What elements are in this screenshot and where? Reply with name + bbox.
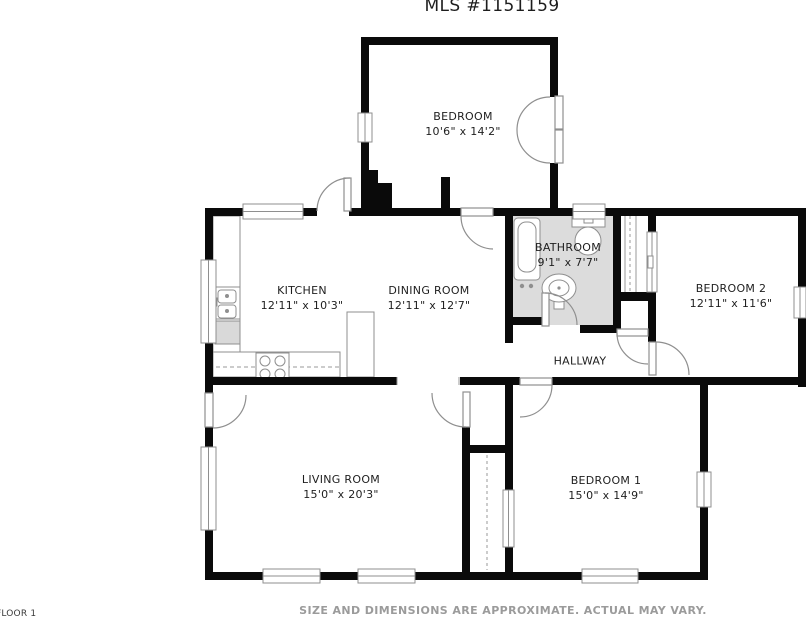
room-name: BEDROOM 2 xyxy=(690,281,773,296)
door-swing xyxy=(205,393,246,428)
room-dims: 12'11" x 12'7" xyxy=(388,298,471,313)
room-name: DINING ROOM xyxy=(388,283,471,298)
window xyxy=(697,472,711,507)
floor-label: FLOOR 1 xyxy=(0,609,36,619)
cased-opening xyxy=(397,377,459,385)
window xyxy=(263,569,320,583)
door-swing xyxy=(317,178,351,211)
door-swing xyxy=(432,392,470,427)
room-dims: 12'11" x 11'6" xyxy=(690,296,773,311)
room-name: BEDROOM xyxy=(425,109,501,124)
page-title: MLS #1151159 xyxy=(424,0,559,16)
room-label-hallway: HALLWAY xyxy=(554,354,607,369)
sliding-door xyxy=(503,490,514,547)
door-swing xyxy=(617,329,648,364)
room-label-bathroom: BATHROOM 9'1" x 7'7" xyxy=(535,240,601,270)
room-label-bedroom-2: BEDROOM 2 12'11" x 11'6" xyxy=(690,281,773,311)
room-dims: 15'0" x 14'9" xyxy=(568,488,644,503)
room-dims: 12'11" x 10'3" xyxy=(261,298,344,313)
room-name: BEDROOM 1 xyxy=(568,473,644,488)
window xyxy=(201,260,216,343)
window xyxy=(794,287,806,318)
room-dims: 15'0" x 20'3" xyxy=(302,487,380,502)
dishwasher-icon xyxy=(215,321,240,344)
door-swing xyxy=(461,208,493,249)
room-label-kitchen: KITCHEN 12'11" x 10'3" xyxy=(261,283,344,313)
double-door-swing xyxy=(517,96,563,163)
room-dims: 9'1" x 7'7" xyxy=(535,255,601,270)
window xyxy=(358,569,415,583)
window xyxy=(201,447,216,530)
room-name: BATHROOM xyxy=(535,240,601,255)
door-swing xyxy=(520,378,552,417)
door-swing xyxy=(649,342,689,375)
windows xyxy=(201,113,806,583)
room-dims: 10'6" x 14'2" xyxy=(425,124,501,139)
window xyxy=(243,204,303,219)
bedroom2-closet xyxy=(625,216,636,292)
room-label-bedroom-1: BEDROOM 1 15'0" x 14'9" xyxy=(568,473,644,503)
room-label-dining-room: DINING ROOM 12'11" x 12'7" xyxy=(388,283,471,313)
window xyxy=(573,204,605,219)
room-label-bedroom-top: BEDROOM 10'6" x 14'2" xyxy=(425,109,501,139)
room-name: HALLWAY xyxy=(554,354,607,369)
room-name: LIVING ROOM xyxy=(302,472,380,487)
floorplan-page: MLS #1151159 BEDROOM 10'6" x 14'2" BATHR… xyxy=(0,0,806,622)
wall-stub xyxy=(441,177,450,210)
disclaimer-text: SIZE AND DIMENSIONS ARE APPROXIMATE. ACT… xyxy=(299,604,707,617)
room-name: KITCHEN xyxy=(261,283,344,298)
sliding-door xyxy=(647,232,657,292)
window xyxy=(582,569,638,583)
room-label-living-room: LIVING ROOM 15'0" x 20'3" xyxy=(302,472,380,502)
window xyxy=(358,113,372,142)
